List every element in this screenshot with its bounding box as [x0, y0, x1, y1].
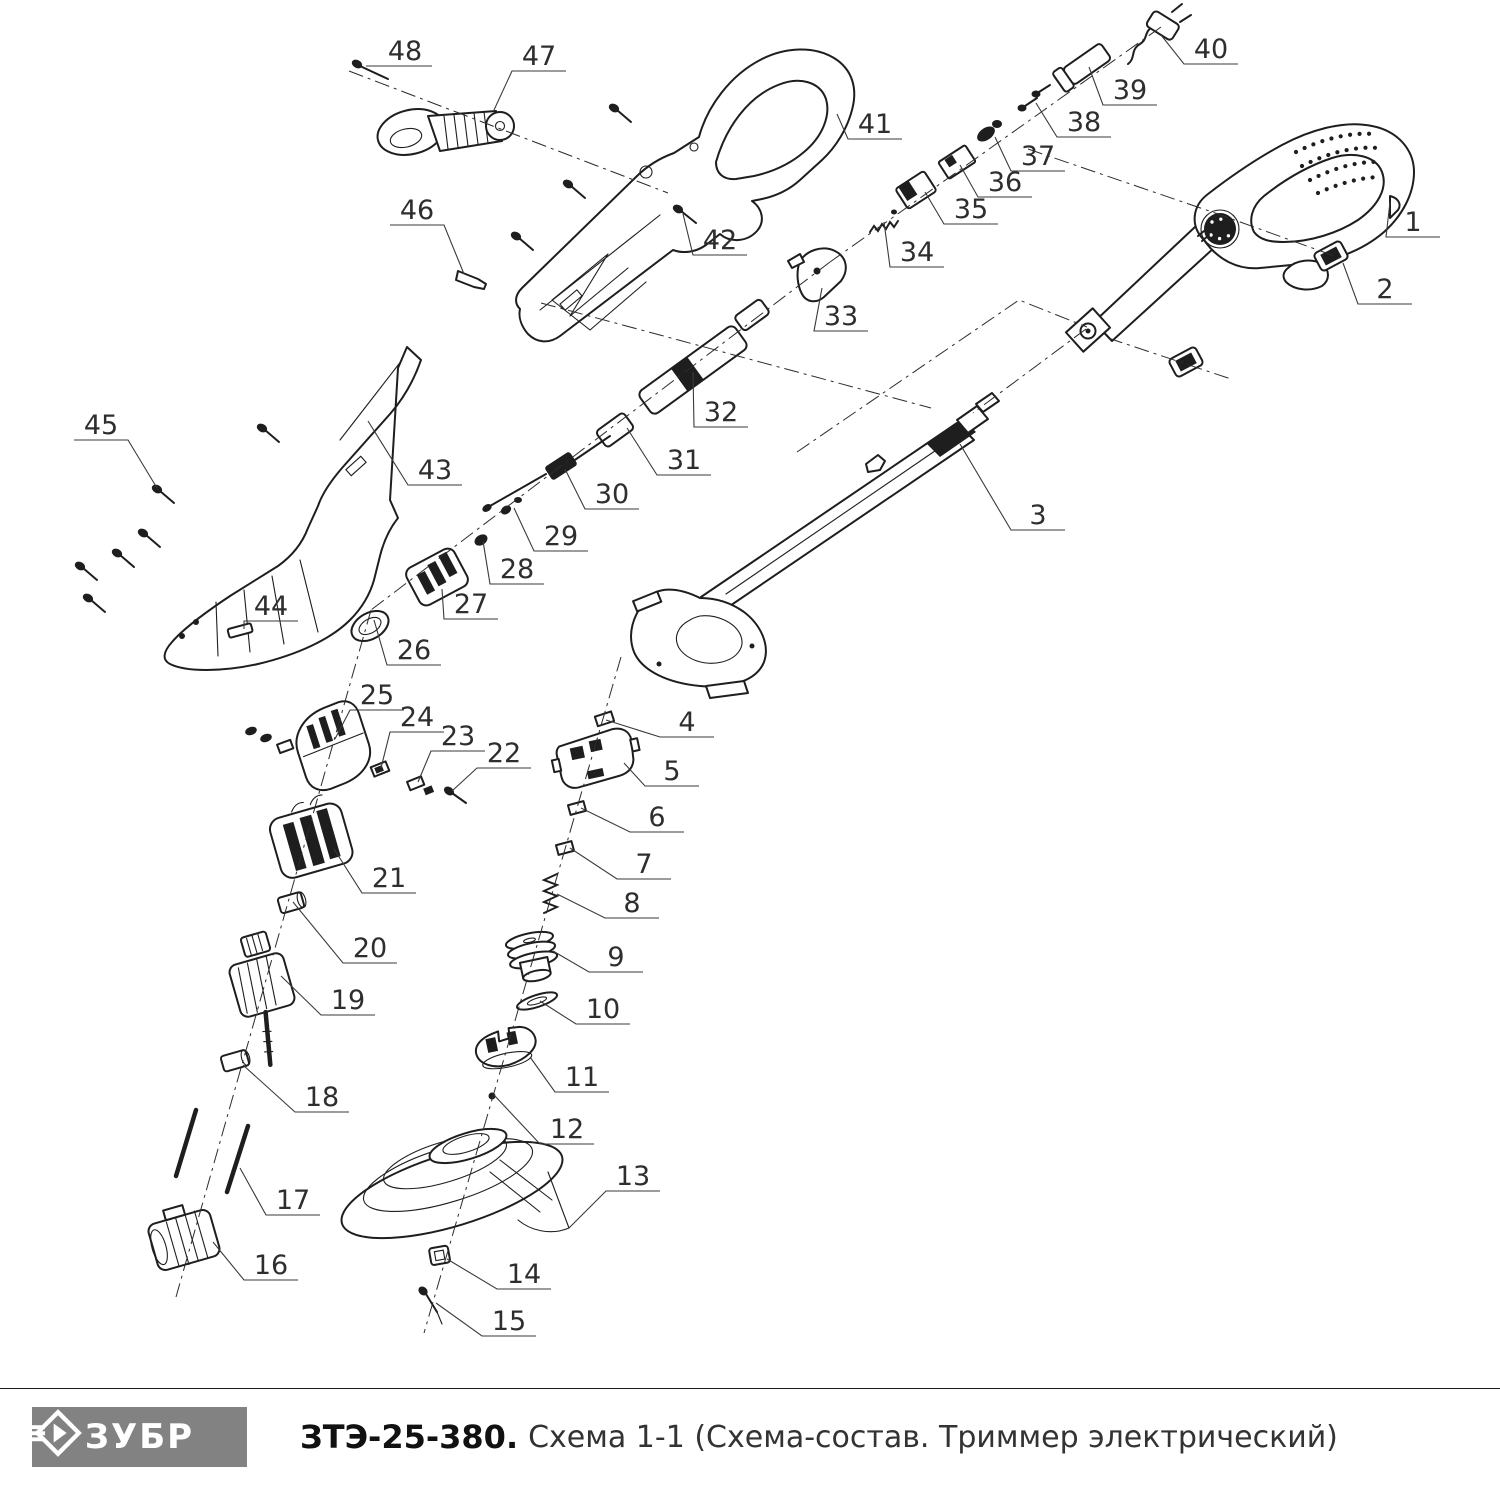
part-label-43: 43: [418, 455, 452, 486]
brand-logo-icon: [32, 1407, 84, 1459]
brush-cap-24: [371, 761, 390, 776]
scheme-caption: ЗТЭ-25-380. Схема 1-1 (Схема-состав. Три…: [300, 1407, 1338, 1467]
part-label-26: 26: [397, 635, 431, 666]
part-label-44: 44: [254, 591, 288, 622]
motor-cap-25: [244, 697, 378, 795]
part-label-10: 10: [586, 994, 620, 1025]
part-label-6: 6: [648, 802, 665, 833]
part-label-8: 8: [623, 888, 640, 919]
spool-cap-16: [143, 1198, 222, 1273]
switch-train-axis: [830, 27, 1161, 262]
guard-shield-13: [331, 1122, 572, 1258]
part-label-39: 39: [1113, 75, 1147, 106]
spring-pin-34: [870, 210, 898, 233]
part-label-15: 15: [492, 1306, 526, 1337]
part-label-34: 34: [900, 237, 934, 268]
scheme-title: Схема 1-1 (Схема-состав. Триммер электри…: [528, 1420, 1338, 1455]
stator-21: [264, 791, 355, 881]
spring-8: [544, 874, 557, 913]
part-label-27: 27: [454, 589, 488, 620]
leader-part-45: [74, 440, 157, 488]
part-label-16: 16: [254, 1250, 288, 1281]
bearing-20: [277, 891, 307, 914]
leader-part-24: [381, 732, 444, 768]
part-label-28: 28: [500, 554, 534, 585]
part-label-46: 46: [400, 195, 434, 226]
leader-part-47: [494, 71, 566, 110]
leader-part-46: [390, 225, 464, 274]
screw-housing-top: [607, 102, 631, 122]
part-label-11: 11: [565, 1062, 599, 1093]
part-label-31: 31: [667, 445, 701, 476]
part-label-47: 47: [522, 41, 556, 72]
part-label-29: 29: [544, 521, 578, 552]
part-label-30: 30: [595, 479, 629, 510]
screw-22: [442, 785, 466, 803]
part-label-12: 12: [550, 1114, 584, 1145]
leader-part-8: [557, 894, 659, 918]
cord-clamp-37: [974, 120, 1002, 145]
power-plug-40: [1128, 4, 1191, 64]
part-label-20: 20: [353, 933, 387, 964]
cord-lower-axis: [1108, 338, 1231, 379]
armature-19: [221, 928, 311, 1068]
model-number: ЗТЭ-25-380.: [300, 1418, 518, 1456]
boom-assembly-3: [631, 393, 999, 698]
spool-9: [505, 929, 562, 986]
part-label-45: 45: [84, 410, 118, 441]
screws-45: [73, 422, 279, 612]
leader-part-22: [452, 768, 531, 791]
part-label-24: 24: [400, 702, 434, 733]
exploded-view-drawing: 1234567891011121314151617181920212223242…: [0, 0, 1500, 1500]
screw-housing-left: [561, 178, 585, 198]
part-label-32: 32: [704, 397, 738, 428]
part-label-3: 3: [1029, 500, 1046, 531]
part-label-17: 17: [276, 1185, 310, 1216]
brush-caps-23: [407, 776, 434, 795]
brand-logo-text: ЗУБР: [85, 1420, 194, 1454]
part-label-41: 41: [858, 109, 892, 140]
cord-clamp-2-duplicate: [1168, 346, 1204, 378]
leader-part-7: [570, 848, 671, 879]
throttle-cable-30: [481, 436, 610, 514]
part-label-14: 14: [507, 1259, 541, 1290]
spool-holder-11: [472, 1023, 540, 1073]
boom-axis: [973, 329, 1086, 413]
leader-part-9: [553, 951, 643, 972]
part-label-40: 40: [1194, 34, 1228, 65]
part-label-7: 7: [635, 849, 652, 880]
pin-46: [456, 271, 486, 289]
trimmer-line-rods-17: [176, 1110, 248, 1192]
part-label-2: 2: [1376, 274, 1393, 305]
aux-handle-47: [373, 102, 514, 161]
gear-mount-5: [548, 725, 644, 792]
part-label-36: 36: [988, 167, 1022, 198]
part-label-1: 1: [1404, 207, 1421, 238]
handle-assembly-1: [1066, 124, 1414, 351]
nut-6: [568, 801, 586, 815]
brand-logo: ЗУБР: [32, 1407, 247, 1467]
part-label-21: 21: [372, 863, 406, 894]
part-label-5: 5: [663, 756, 680, 787]
footer: ЗУБР ЗТЭ-25-380. Схема 1-1 (Схема-состав…: [0, 1400, 1500, 1480]
part-label-9: 9: [607, 942, 624, 973]
part-label-25: 25: [360, 680, 394, 711]
leader-part-6: [581, 808, 684, 832]
part-label-23: 23: [441, 721, 475, 752]
diagram-page: 1234567891011121314151617181920212223242…: [0, 0, 1500, 1500]
part-label-19: 19: [331, 985, 365, 1016]
part-label-18: 18: [305, 1082, 339, 1113]
leader-part-5: [624, 763, 699, 786]
part-label-38: 38: [1067, 107, 1101, 138]
part-label-13: 13: [616, 1161, 650, 1192]
ferrule-28: [472, 532, 489, 548]
leader-part-13: [569, 1191, 660, 1228]
washer-10: [515, 989, 559, 1013]
part-label-48: 48: [388, 36, 422, 67]
square-nut-14: [429, 1245, 451, 1265]
part-label-33: 33: [824, 301, 858, 332]
part-label-4: 4: [678, 707, 695, 738]
screw-48: [350, 58, 388, 79]
screw-housing-mid: [509, 230, 533, 250]
leader-part-23: [418, 751, 485, 782]
part-label-35: 35: [954, 194, 988, 225]
screws-38: [1018, 85, 1051, 112]
leader-part-3: [960, 444, 1065, 530]
footer-divider: [0, 1388, 1500, 1389]
part-label-37: 37: [1021, 141, 1055, 172]
cord-sleeve-39: [1052, 43, 1112, 93]
part-label-42: 42: [703, 225, 737, 256]
part-label-22: 22: [487, 738, 521, 769]
